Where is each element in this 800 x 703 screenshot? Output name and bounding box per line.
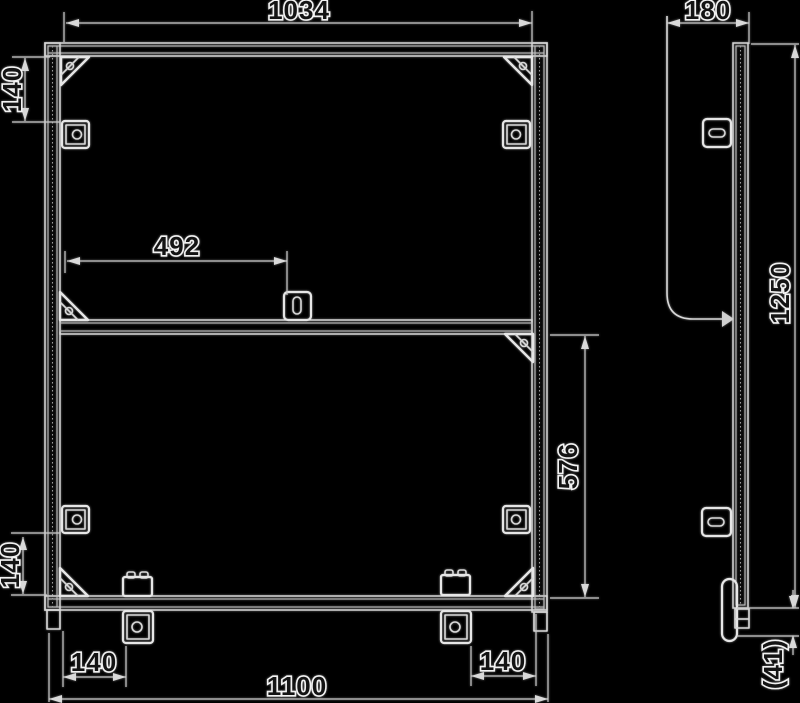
dim-label-bottom-left-clamp-offset: 140 [71, 647, 117, 677]
dim-label-mid-fitting-offset: 492 [154, 231, 200, 261]
dim-label-side-depth: 180 [685, 0, 731, 25]
dim-label-top-width: 1034 [268, 0, 330, 25]
drawing-canvas: 1034 180 140 492 576 140 [0, 0, 800, 703]
dim-label-overall-width: 1100 [267, 671, 327, 701]
dim-label-lower-hole-offset: 140 [0, 542, 25, 588]
dim-label-foot-height: (41) [758, 639, 788, 689]
background [0, 0, 800, 703]
technical-drawing: 1034 180 140 492 576 140 [0, 0, 800, 703]
dim-label-side-height: 1250 [765, 262, 795, 324]
dim-label-upper-hole-offset: 140 [0, 66, 27, 112]
dim-label-bottom-right-clamp-offset: 140 [480, 646, 526, 676]
dim-label-lower-opening-height: 576 [553, 443, 583, 489]
